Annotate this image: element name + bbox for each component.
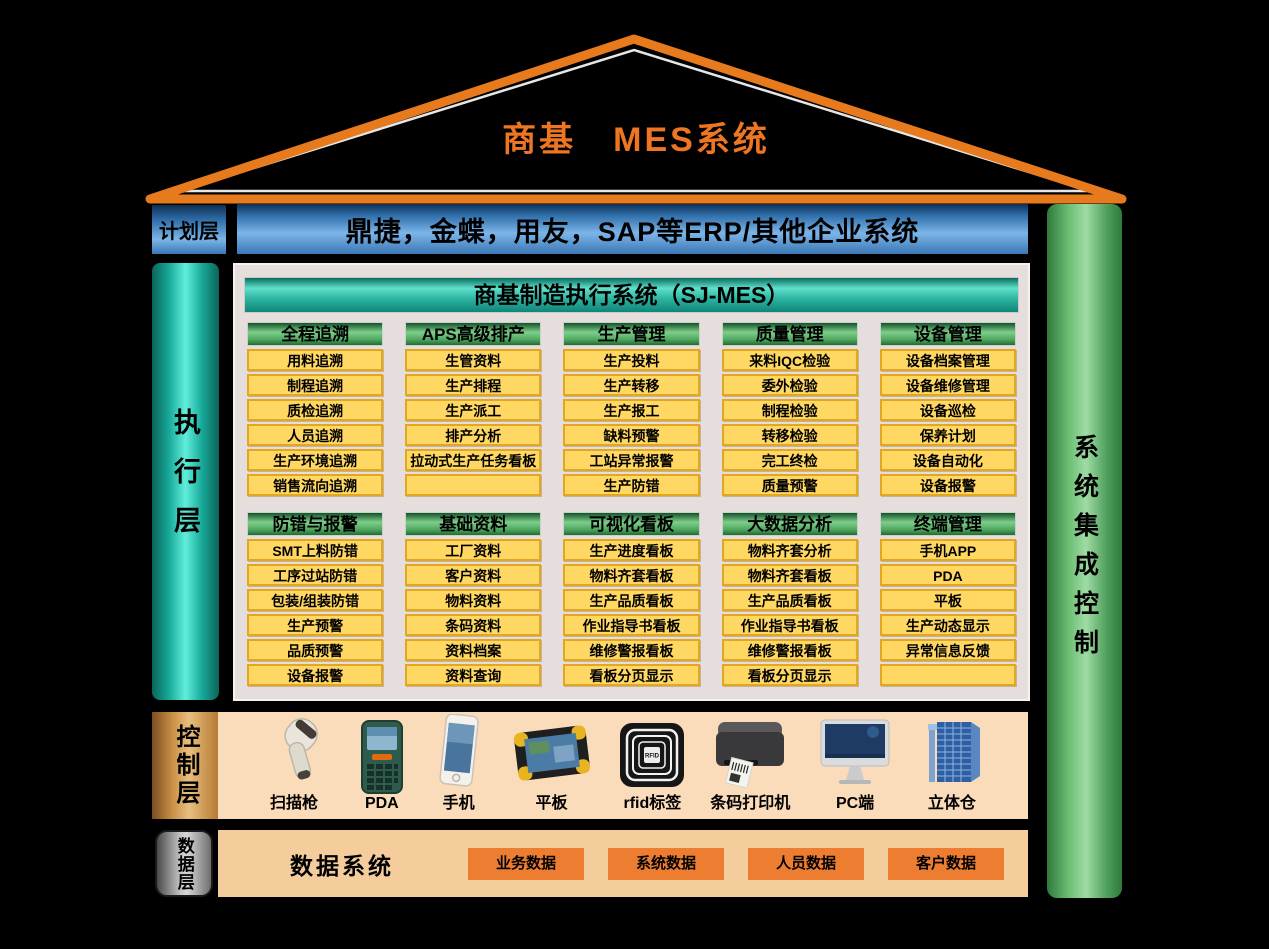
device-rfid-tag: RFIDrfid标签: [619, 716, 685, 813]
device-label: PC端: [836, 789, 874, 813]
module-item: 异常信息反馈: [880, 639, 1016, 661]
module-row: 全程追溯用料追溯制程追溯质检追溯人员追溯生产环境追溯销售流向追溯APS高级排产生…: [235, 322, 1028, 496]
pc-icon: [815, 716, 895, 788]
module-item: 生产排程: [405, 374, 541, 396]
module-row: 防错与报警SMT上料防错工序过站防错包装/组装防错生产预警品质预警设备报警基础资…: [235, 512, 1028, 686]
module-item: 生产报工: [563, 399, 699, 421]
module-header: 设备管理: [880, 322, 1016, 346]
module-item: 物料齐套分析: [722, 539, 858, 561]
module-item: 设备维修管理: [880, 374, 1016, 396]
module-item: 物料资料: [405, 589, 541, 611]
module-item: 生产品质看板: [722, 589, 858, 611]
sj-mes-header: 商基制造执行系统（SJ-MES）: [244, 277, 1019, 313]
module-item: 拉动式生产任务看板: [405, 449, 541, 471]
warehouse-icon: [920, 716, 984, 788]
data-system-title: 数据系统: [290, 847, 394, 881]
module-item: 设备报警: [880, 474, 1016, 496]
module-item: 物料齐套看板: [722, 564, 858, 586]
execute-label-text: 执行层: [166, 408, 205, 555]
module-item: 制程追溯: [247, 374, 383, 396]
module-item: 质量预警: [722, 474, 858, 496]
module-item: 作业指导书看板: [722, 614, 858, 636]
module-item: 资料档案: [405, 639, 541, 661]
module-item: 委外检验: [722, 374, 858, 396]
module-column: 基础资料工厂资料客户资料物料资料条码资料资料档案资料查询: [405, 512, 541, 686]
module-column: 全程追溯用料追溯制程追溯质检追溯人员追溯生产环境追溯销售流向追溯: [247, 322, 383, 496]
module-item: 品质预警: [247, 639, 383, 661]
module-item: [880, 664, 1016, 686]
device-phone: 手机: [434, 716, 484, 813]
module-item: 来料IQC检验: [722, 349, 858, 371]
module-item: 维修警报看板: [722, 639, 858, 661]
page-title: 商基 MES系统: [140, 112, 1132, 161]
module-item: 工站异常报警: [563, 449, 699, 471]
device-label: PDA: [365, 795, 399, 813]
layer-label-control: 控制层: [152, 712, 219, 819]
module-item: 手机APP: [880, 539, 1016, 561]
module-item: 生产投料: [563, 349, 699, 371]
device-label: 扫描枪: [270, 789, 318, 813]
module-item: 看板分页显示: [722, 664, 858, 686]
device-label: 条码打印机: [710, 789, 790, 813]
module-item: 人员追溯: [247, 424, 383, 446]
device-label: 平板: [536, 789, 568, 813]
module-header: 可视化看板: [563, 512, 699, 536]
module-header: APS高级排产: [405, 322, 541, 346]
module-item: 物料齐套看板: [563, 564, 699, 586]
data-panel: 数据系统 业务数据系统数据人员数据客户数据: [218, 830, 1028, 897]
module-column: 质量管理来料IQC检验委外检验制程检验转移检验完工终检质量预警: [722, 322, 858, 496]
module-item: 包装/组装防错: [247, 589, 383, 611]
module-header: 生产管理: [563, 322, 699, 346]
module-item: 保养计划: [880, 424, 1016, 446]
module-item: 维修警报看板: [563, 639, 699, 661]
module-item: 排产分析: [405, 424, 541, 446]
module-column: 设备管理设备档案管理设备维修管理设备巡检保养计划设备自动化设备报警: [880, 322, 1016, 496]
data-chip: 客户数据: [888, 848, 1004, 880]
module-item: 生产动态显示: [880, 614, 1016, 636]
module-item: 生产环境追溯: [247, 449, 383, 471]
device-warehouse: 立体仓: [920, 716, 984, 813]
module-item: 作业指导书看板: [563, 614, 699, 636]
module-column: 大数据分析物料齐套分析物料齐套看板生产品质看板作业指导书看板维修警报看板看板分页…: [722, 512, 858, 686]
module-item: 工序过站防错: [247, 564, 383, 586]
device-pda: PDA: [355, 722, 409, 813]
module-header: 终端管理: [880, 512, 1016, 536]
module-item: 客户资料: [405, 564, 541, 586]
system-integration-bar: 系统集成控制: [1047, 204, 1122, 898]
mes-architecture-diagram: 商基 MES系统 计划层 鼎捷，金蝶，用友，SAP等ERP/其他企业系统 系统集…: [0, 0, 1269, 949]
module-item: 生产防错: [563, 474, 699, 496]
module-header: 全程追溯: [247, 322, 383, 346]
execution-panel: 商基制造执行系统（SJ-MES） 全程追溯用料追溯制程追溯质检追溯人员追溯生产环…: [233, 263, 1030, 701]
device-label: rfid标签: [623, 789, 681, 813]
module-item: [405, 474, 541, 496]
data-chip: 业务数据: [468, 848, 584, 880]
layer-label-data: 数据层: [155, 830, 213, 897]
module-item: 资料查询: [405, 664, 541, 686]
module-item: 生产进度看板: [563, 539, 699, 561]
module-item: PDA: [880, 564, 1016, 586]
module-column: 终端管理手机APPPDA平板生产动态显示异常信息反馈: [880, 512, 1016, 686]
module-item: 生产品质看板: [563, 589, 699, 611]
execution-sections: 全程追溯用料追溯制程追溯质检追溯人员追溯生产环境追溯销售流向追溯APS高级排产生…: [235, 322, 1028, 686]
module-item: 生管资料: [405, 349, 541, 371]
device-scanner: 扫描枪: [258, 716, 330, 813]
pda-icon: [355, 722, 409, 794]
data-chip: 人员数据: [748, 848, 864, 880]
module-item: SMT上料防错: [247, 539, 383, 561]
module-column: 防错与报警SMT上料防错工序过站防错包装/组装防错生产预警品质预警设备报警: [247, 512, 383, 686]
device-list: 扫描枪PDA手机平板RFIDrfid标签条码打印机PC端立体仓: [218, 712, 1028, 819]
rfid-tag-icon: RFID: [619, 716, 685, 788]
barcode-printer-icon: [710, 716, 790, 788]
module-item: 设备自动化: [880, 449, 1016, 471]
erp-systems-bar: 鼎捷，金蝶，用友，SAP等ERP/其他企业系统: [237, 204, 1028, 254]
control-label-text: 控制层: [168, 724, 203, 808]
module-item: 制程检验: [722, 399, 858, 421]
module-item: 平板: [880, 589, 1016, 611]
module-item: 工厂资料: [405, 539, 541, 561]
tablet-icon: [509, 716, 595, 788]
data-chip: 系统数据: [608, 848, 724, 880]
module-item: 设备档案管理: [880, 349, 1016, 371]
scanner-icon: [258, 716, 330, 788]
module-item: 质检追溯: [247, 399, 383, 421]
system-integration-label: 系统集成控制: [1067, 434, 1103, 668]
module-item: 销售流向追溯: [247, 474, 383, 496]
module-header: 质量管理: [722, 322, 858, 346]
module-item: 用料追溯: [247, 349, 383, 371]
module-item: 设备巡检: [880, 399, 1016, 421]
layer-label-plan: 计划层: [152, 205, 226, 254]
module-column: APS高级排产生管资料生产排程生产派工排产分析拉动式生产任务看板: [405, 322, 541, 496]
device-barcode-printer: 条码打印机: [710, 716, 790, 813]
module-header: 基础资料: [405, 512, 541, 536]
device-tablet: 平板: [509, 716, 595, 813]
module-item: 生产派工: [405, 399, 541, 421]
layer-label-execute: 执行层: [152, 263, 219, 700]
module-header: 大数据分析: [722, 512, 858, 536]
module-column: 可视化看板生产进度看板物料齐套看板生产品质看板作业指导书看板维修警报看板看板分页…: [563, 512, 699, 686]
module-item: 生产预警: [247, 614, 383, 636]
module-header: 防错与报警: [247, 512, 383, 536]
module-column: 生产管理生产投料生产转移生产报工缺料预警工站异常报警生产防错: [563, 322, 699, 496]
module-item: 设备报警: [247, 664, 383, 686]
module-item: 条码资料: [405, 614, 541, 636]
module-item: 缺料预警: [563, 424, 699, 446]
module-item: 看板分页显示: [563, 664, 699, 686]
data-chip-row: 业务数据系统数据人员数据客户数据: [468, 848, 1004, 880]
module-item: 完工终检: [722, 449, 858, 471]
phone-icon: [434, 716, 484, 788]
device-label: 立体仓: [928, 789, 976, 813]
device-label: 手机: [443, 789, 475, 813]
module-item: 生产转移: [563, 374, 699, 396]
device-pc: PC端: [815, 716, 895, 813]
data-label-text: 数据层: [174, 837, 194, 891]
module-item: 转移检验: [722, 424, 858, 446]
svg-text:RFID: RFID: [645, 754, 660, 760]
